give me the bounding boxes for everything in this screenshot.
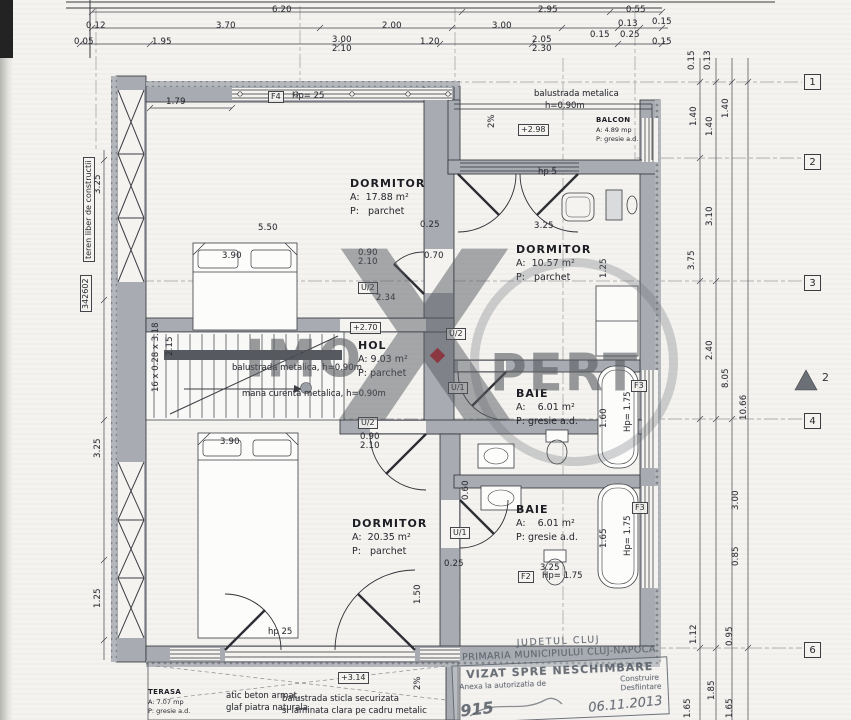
bed-furniture xyxy=(193,243,298,638)
stamp-options: Construire Desfiintare xyxy=(620,674,662,693)
desk-furniture xyxy=(562,190,638,356)
section-marker-number: 2 xyxy=(822,371,829,384)
frame-lines xyxy=(66,0,775,58)
scan-black-blob xyxy=(0,0,13,58)
approval-stamp: JUDETUL CLUJ PRIMARIA MUNICIPIULUI CLUJ-… xyxy=(450,631,669,720)
plan-linework xyxy=(0,0,851,720)
stairs xyxy=(146,332,344,420)
section-triangle-marker xyxy=(795,370,817,390)
floorplan-sheet: 6.202.950.550.123.702.003.000.130.150.15… xyxy=(0,0,851,720)
terrace-outline xyxy=(148,662,458,720)
stamp-box: VIZAT SPRE NESCHIMBARE Anexa la autoriza… xyxy=(451,656,669,720)
scan-edge-strip xyxy=(0,0,13,720)
stamp-date-handwritten: 06.11.2013 xyxy=(587,694,663,716)
stamp-number-handwritten: 915 xyxy=(459,698,494,720)
stamp-option-demolish: Desfiintare xyxy=(620,682,661,692)
